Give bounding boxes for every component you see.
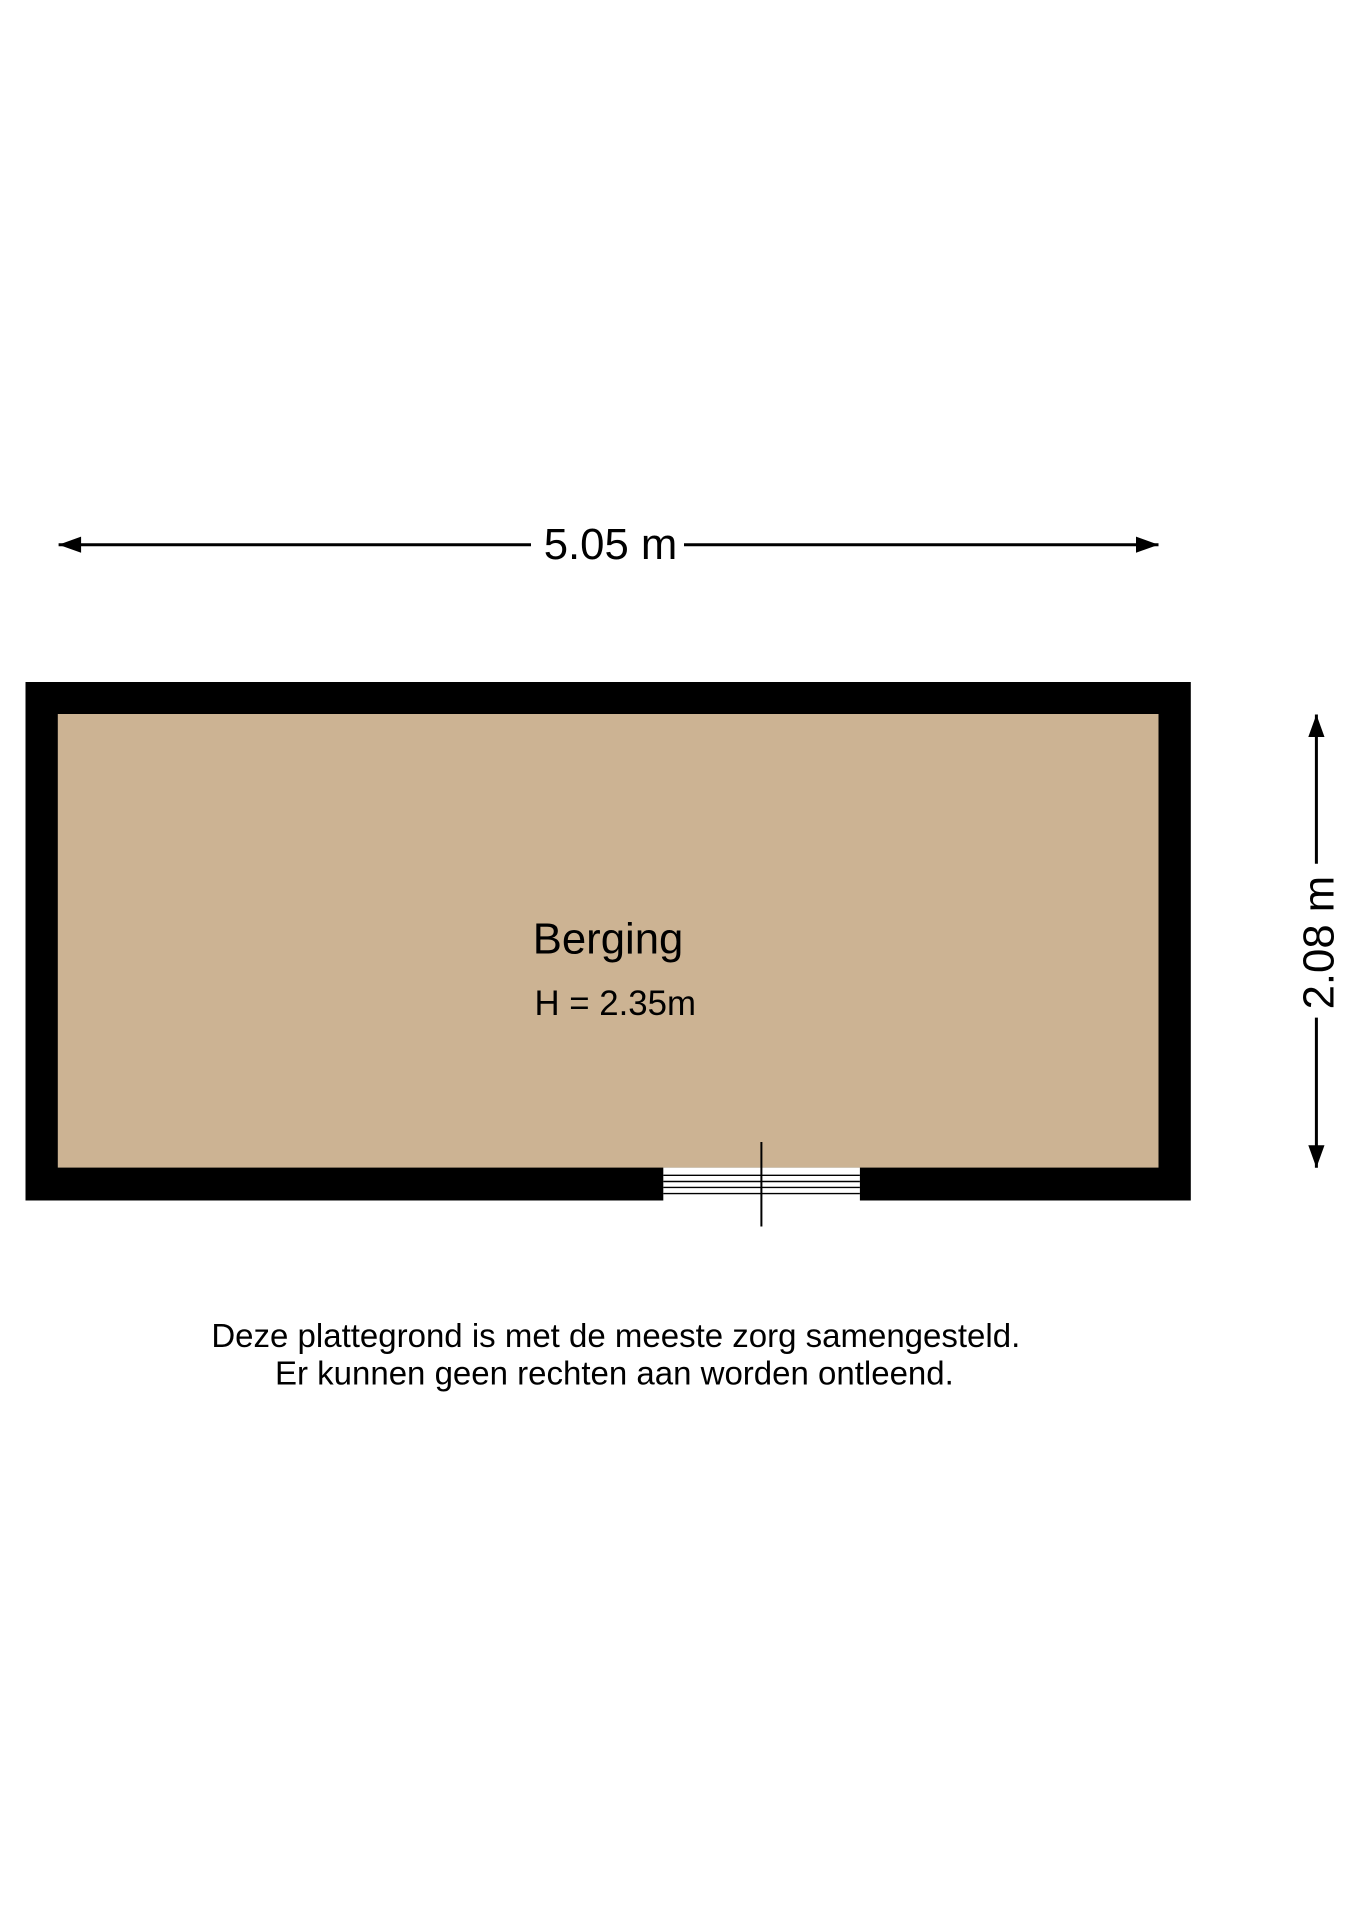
svg-text:H = 2.35m: H = 2.35m [534, 984, 696, 1023]
svg-text:2.08 m: 2.08 m [1295, 876, 1344, 1010]
svg-text:Berging: Berging [533, 915, 684, 964]
svg-text:Er kunnen geen rechten aan wor: Er kunnen geen rechten aan worden ontlee… [275, 1355, 954, 1392]
svg-text:5.05 m: 5.05 m [544, 520, 678, 569]
svg-text:Deze plattegrond is met de mee: Deze plattegrond is met de meeste zorg s… [211, 1317, 1020, 1354]
